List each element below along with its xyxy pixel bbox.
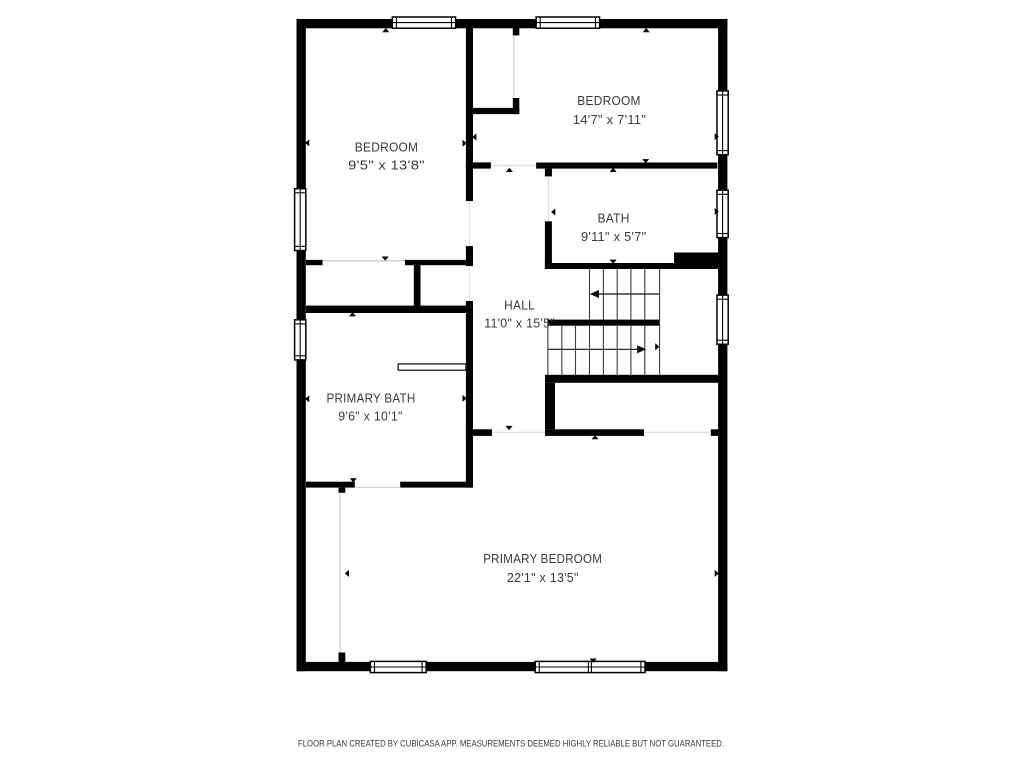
svg-text:BEDROOM: BEDROOM	[577, 93, 641, 108]
svg-text:BEDROOM: BEDROOM	[355, 139, 419, 154]
svg-text:9'11" x 5'7": 9'11" x 5'7"	[581, 229, 646, 244]
svg-text:11'0" x 15'5": 11'0" x 15'5"	[484, 315, 555, 330]
svg-text:14'7" x 7'11": 14'7" x 7'11"	[573, 112, 646, 127]
svg-text:9'6" x 10'1": 9'6" x 10'1"	[338, 409, 402, 424]
svg-text:FLOOR PLAN CREATED BY CUBICASA: FLOOR PLAN CREATED BY CUBICASA APP. MEAS…	[298, 738, 724, 748]
svg-text:PRIMARY BATH: PRIMARY BATH	[327, 390, 416, 405]
svg-text:22'1" x 13'5": 22'1" x 13'5"	[507, 570, 579, 585]
svg-text:HALL: HALL	[504, 298, 535, 313]
svg-text:BATH: BATH	[598, 210, 630, 225]
svg-text:PRIMARY BEDROOM: PRIMARY BEDROOM	[483, 551, 602, 566]
svg-text:9'5" x 13'8": 9'5" x 13'8"	[348, 158, 425, 173]
